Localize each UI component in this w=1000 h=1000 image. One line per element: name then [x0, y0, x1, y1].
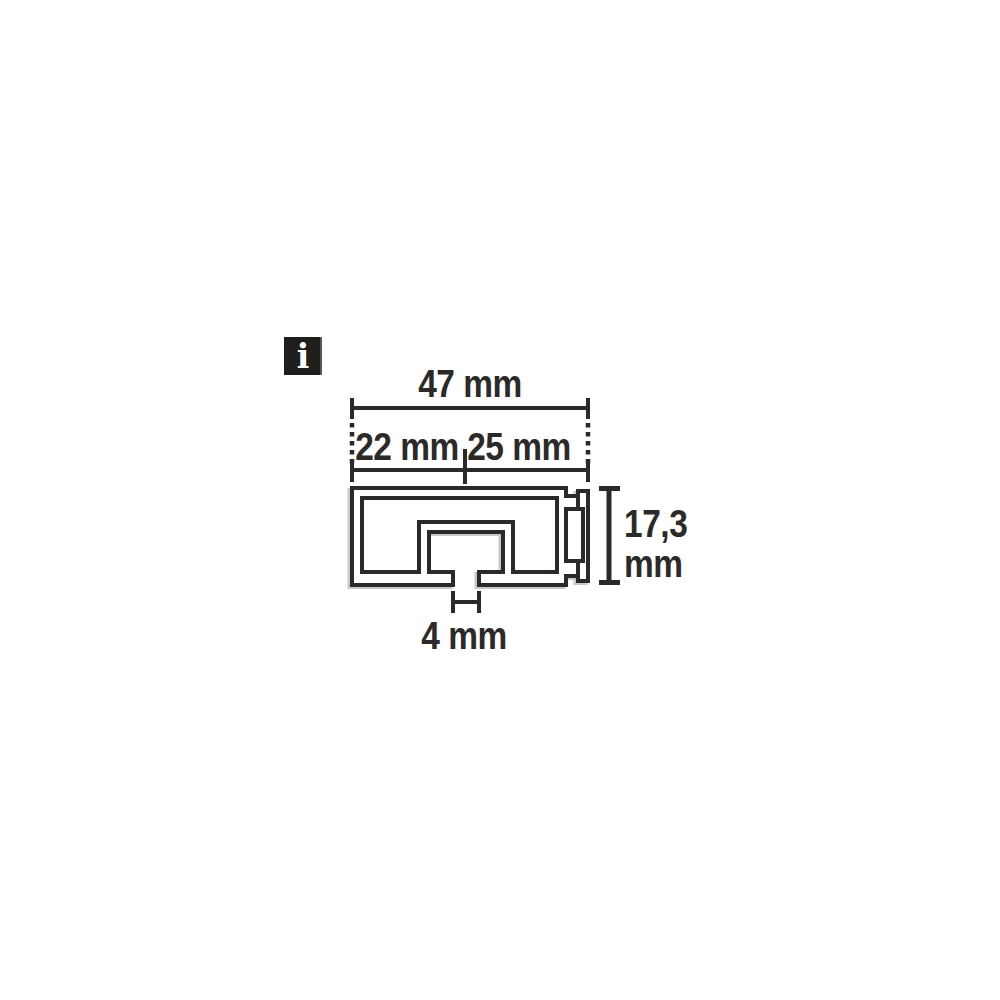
- dim-left-segment-label: 22 mm: [355, 426, 459, 468]
- diagram-canvas: i: [0, 0, 1000, 1000]
- dim-slot-width-label: 4 mm: [421, 615, 507, 657]
- dim-slot-width: [453, 591, 479, 613]
- dim-height: [599, 489, 620, 584]
- dim-right-segment-label: 25 mm: [467, 426, 571, 468]
- profile-cross-section: [352, 488, 588, 585]
- dim-height-label-line1: 17,3: [624, 503, 687, 545]
- dim-height-label-line2: mm: [624, 543, 683, 585]
- profile-dimension-drawing: 47 mm 22 mm 25 mm 17,3 mm 4 mm: [0, 0, 1000, 1000]
- profile-rail-middle-bar: [566, 509, 583, 561]
- dim-total-width-label: 47 mm: [418, 363, 522, 405]
